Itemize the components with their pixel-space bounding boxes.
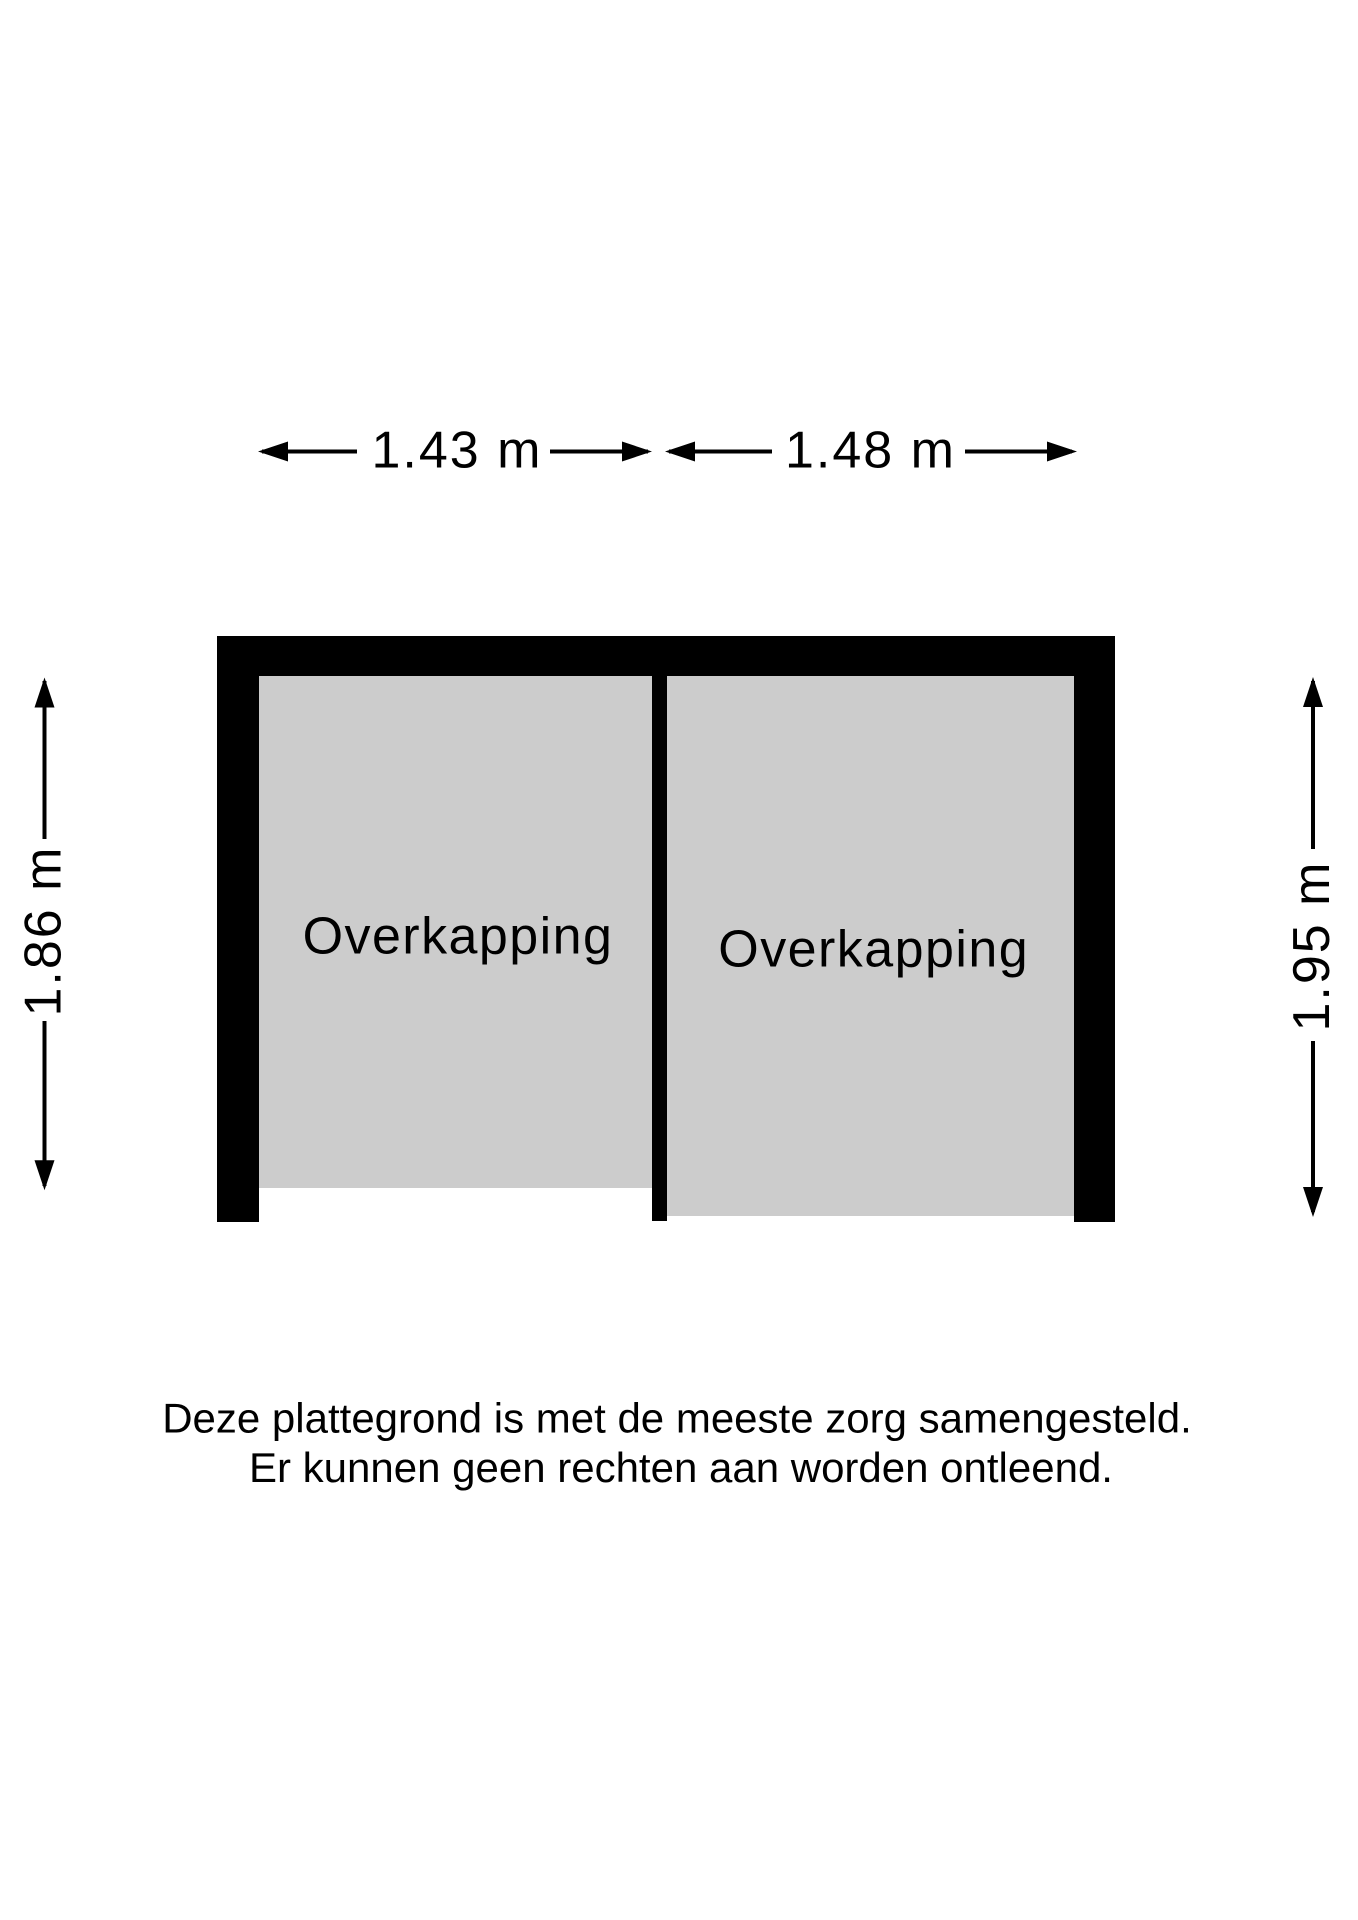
svg-text:Overkapping: Overkapping	[718, 920, 1029, 978]
svg-text:1.95 m: 1.95 m	[1283, 861, 1341, 1032]
svg-text:1.48 m: 1.48 m	[785, 422, 956, 480]
svg-text:Er kunnen geen rechten aan wor: Er kunnen geen rechten aan worden ontlee…	[249, 1444, 1113, 1491]
svg-text:Overkapping: Overkapping	[303, 908, 614, 966]
svg-text:1.43 m: 1.43 m	[372, 422, 543, 480]
svg-text:Deze plattegrond is met de mee: Deze plattegrond is met de meeste zorg s…	[162, 1395, 1192, 1442]
svg-text:1.86 m: 1.86 m	[15, 846, 73, 1017]
